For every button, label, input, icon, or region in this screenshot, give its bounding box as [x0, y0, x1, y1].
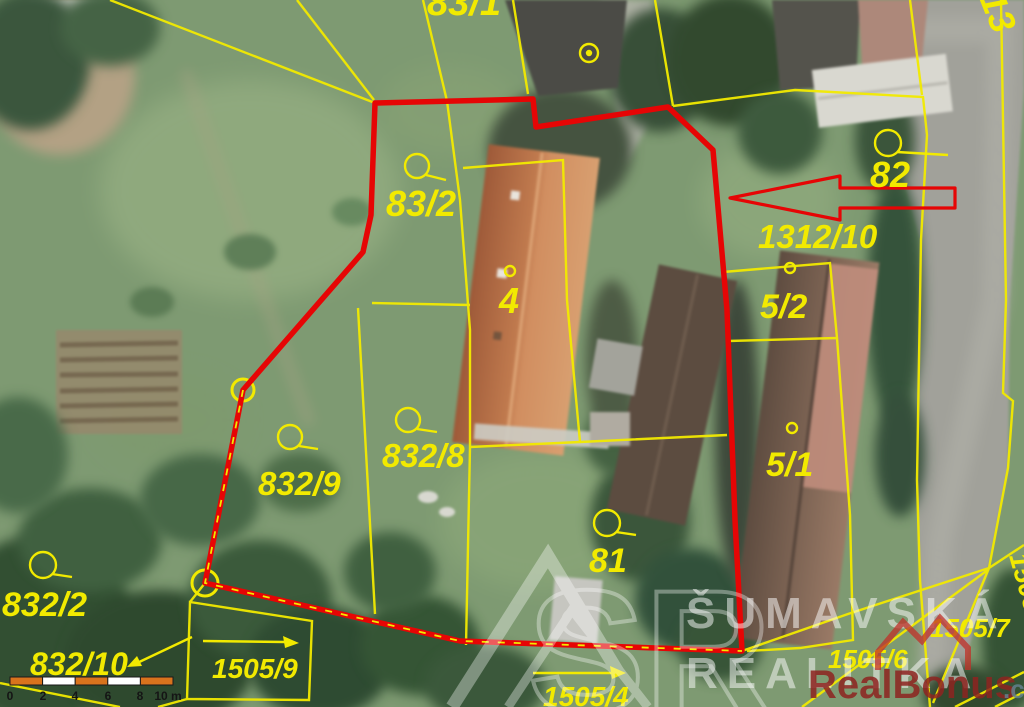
scale-tick: 2: [40, 689, 47, 703]
cadastral-map: 83/1 83/2 832/9 832/8 832/2 832/10 4 81 …: [0, 0, 1024, 707]
parcel-label-832-2: 832/2: [2, 586, 87, 624]
scale-tick: 8: [137, 689, 144, 703]
parcel-label-1312-10: 1312/10: [758, 218, 878, 255]
parcel-label-832-9: 832/9: [258, 465, 341, 502]
outbuilding: [589, 339, 643, 396]
cadastral-map-screenshot: 83/1 83/2 832/9 832/8 832/2 832/10 4 81 …: [0, 0, 1024, 707]
realbonus-brand: RealBonus: [808, 663, 1017, 707]
garden-beds: [56, 330, 182, 434]
parcel-label-83-2: 83/2: [386, 183, 456, 224]
watermark-brand-line1: ŠUMAVSKÁ: [686, 587, 1007, 638]
parcel-label-832-8: 832/8: [382, 437, 465, 474]
parcel-label-5-1: 5/1: [766, 446, 813, 484]
parcel-label-5-2: 5/2: [760, 288, 807, 326]
house-number-label: 4: [498, 280, 519, 321]
parcel-label-82: 82: [870, 154, 910, 195]
realbonus-tld: .cz: [1003, 674, 1024, 704]
parcel-label-1505-9: 1505/9: [212, 653, 298, 684]
parcel-label-83-1: 83/1: [427, 0, 501, 24]
scale-tick: 4: [72, 689, 79, 703]
scale-tick: 10 m: [154, 689, 181, 703]
scale-tick: 0: [7, 689, 14, 703]
scale-tick: 6: [105, 689, 112, 703]
